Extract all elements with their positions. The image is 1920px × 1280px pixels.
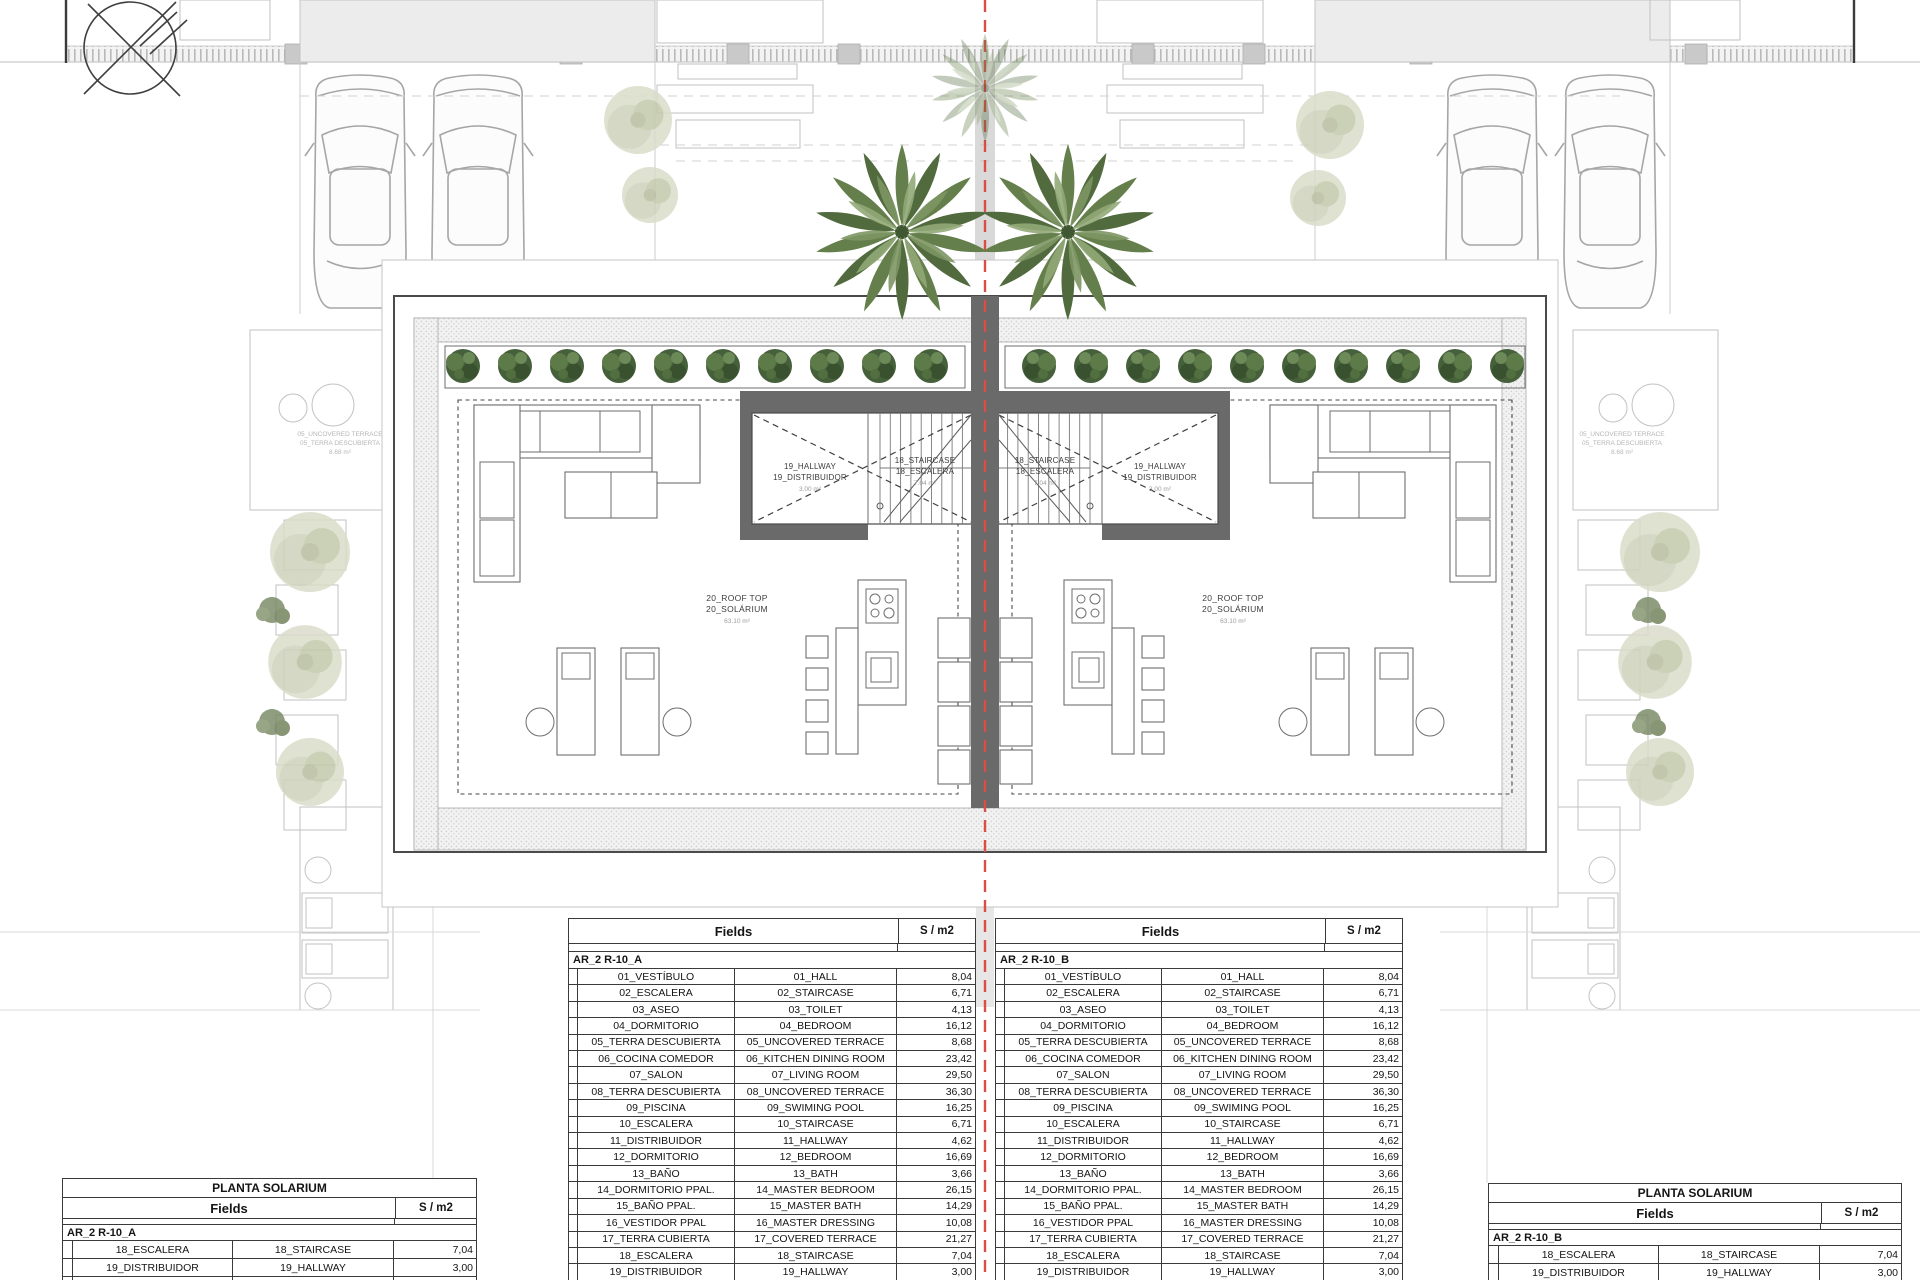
solarium-table-unit-b: PLANTA SOLARIUM Fields S / m2 AR_2 R-10_…: [1488, 1183, 1902, 1280]
table-row: 15_BAÑO PPAL.15_MASTER BATH14,29: [569, 1199, 975, 1215]
cell-es: 17_TERRA CUBIERTA: [1005, 1232, 1162, 1247]
cell-es: 14_DORMITORIO PPAL.: [578, 1182, 735, 1197]
table-row: 16_VESTIDOR PPAL16_MASTER DRESSING10,08: [569, 1215, 975, 1231]
row-spacer: [569, 1018, 578, 1033]
table-row: 19_DISTRIBUIDOR19_HALLWAY3,00: [569, 1264, 975, 1280]
cell-es: 04_DORMITORIO: [1005, 1018, 1162, 1033]
cell-m2: 3,66: [1324, 1166, 1402, 1181]
cell-en: 08_UNCOVERED TERRACE: [735, 1084, 897, 1099]
cell-es: 19_DISTRIBUIDOR: [73, 1259, 233, 1276]
cell-es: 17_TERRA CUBIERTA: [578, 1232, 735, 1247]
cell-m2: 6,71: [897, 985, 975, 1000]
row-spacer: [569, 1232, 578, 1247]
cell-en: 18_STAIRCASE: [233, 1241, 394, 1258]
row-spacer: [996, 1248, 1005, 1263]
row-spacer: [996, 1149, 1005, 1164]
table-row: 13_BAÑO13_BATH3,66: [569, 1166, 975, 1182]
cell-m2: 14,29: [897, 1199, 975, 1214]
table-row: 07_SALON07_LIVING ROOM29,50: [996, 1067, 1402, 1083]
neighbor-terrace-label: 05_UNCOVERED TERRACE: [297, 431, 383, 438]
table-row: 03_ASEO03_TOILET4,13: [996, 1002, 1402, 1018]
cell-en: 03_TOILET: [735, 1002, 897, 1017]
group-row: AR_2 R-10_A: [63, 1225, 476, 1241]
area-header: S / m2: [899, 925, 975, 937]
cell-es: 08_TERRA DESCUBIERTA: [1005, 1084, 1162, 1099]
cell-m2: 29,50: [897, 1067, 975, 1082]
cell-en: 09_SWIMING POOL: [735, 1100, 897, 1115]
cell-en: 14_MASTER BEDROOM: [1162, 1182, 1324, 1197]
staircase-label-a: 18_STAIRCASE: [895, 456, 956, 465]
area-header: S / m2: [1326, 925, 1402, 937]
group-row: AR_2 R-10_A: [569, 952, 975, 969]
cell-m2: 7,04: [394, 1241, 476, 1258]
row-spacer: [996, 1051, 1005, 1066]
cell-en: 12_BEDROOM: [735, 1149, 897, 1164]
cell-en: 18_STAIRCASE: [1162, 1248, 1324, 1263]
cell-m2: 36,30: [1324, 1084, 1402, 1099]
cell-en: 18_STAIRCASE: [1659, 1246, 1820, 1263]
table-row: 02_ESCALERA02_STAIRCASE6,71: [996, 985, 1402, 1001]
svg-text:63.10 m²: 63.10 m²: [1220, 618, 1246, 625]
svg-text:05_TERRA DESCUBIERTA: 05_TERRA DESCUBIERTA: [300, 440, 381, 447]
row-spacer: [996, 1232, 1005, 1247]
row-spacer: [569, 1264, 578, 1279]
cell-es: 15_BAÑO PPAL.: [1005, 1199, 1162, 1214]
table-row: 18_ESCALERA18_STAIRCASE7,04: [569, 1248, 975, 1264]
table-row: 08_TERRA DESCUBIERTA08_UNCOVERED TERRACE…: [569, 1084, 975, 1100]
row-spacer: [569, 1067, 578, 1082]
row-spacer: [996, 1100, 1005, 1115]
table-header: Fields S / m2: [569, 919, 975, 944]
cell-es: 03_ASEO: [1005, 1002, 1162, 1017]
cell-m2: 8,04: [1324, 969, 1402, 984]
svg-text:63.10 m²: 63.10 m²: [724, 618, 750, 625]
svg-text:8.68 m²: 8.68 m²: [329, 449, 352, 456]
cell-en: 19_HALLWAY: [1162, 1264, 1324, 1279]
architectural-sheet: 05_UNCOVERED TERRACE 05_TERRA DESCUBIERT…: [0, 0, 1920, 1280]
row-spacer: [996, 1215, 1005, 1230]
table-row: 11_DISTRIBUIDOR11_HALLWAY4,62: [996, 1133, 1402, 1149]
table-row: 02_ESCALERA02_STAIRCASE6,71: [569, 985, 975, 1001]
staircase-label-b: 18_STAIRCASE: [1015, 456, 1076, 465]
row-spacer: [996, 1264, 1005, 1279]
row-spacer: [569, 1100, 578, 1115]
row-spacer: [996, 1133, 1005, 1148]
cell-es: 14_DORMITORIO PPAL.: [1005, 1182, 1162, 1197]
cell-m2: 29,50: [1324, 1067, 1402, 1082]
cell-en: 01_HALL: [1162, 969, 1324, 984]
row-spacer: [996, 1199, 1005, 1214]
cell-m2: 16,12: [897, 1018, 975, 1033]
cell-m2: 23,42: [897, 1051, 975, 1066]
fields-header: Fields: [996, 919, 1326, 943]
table-header: Fields S / m2: [1489, 1203, 1901, 1224]
row-spacer: [569, 1182, 578, 1197]
svg-text:20_SOLÁRIUM: 20_SOLÁRIUM: [706, 604, 768, 614]
svg-text:3.00 m²: 3.00 m²: [1149, 486, 1172, 493]
cell-es: 19_DISTRIBUIDOR: [578, 1264, 735, 1279]
cell-es: 16_VESTIDOR PPAL: [1005, 1215, 1162, 1230]
table-row: 17_TERRA CUBIERTA17_COVERED TERRACE21,27: [569, 1232, 975, 1248]
table-row: 18_ESCALERA18_STAIRCASE7,04: [996, 1248, 1402, 1264]
cell-en: 04_BEDROOM: [1162, 1018, 1324, 1033]
group-row: AR_2 R-10_B: [996, 952, 1402, 969]
cell-en: 03_TOILET: [1162, 1002, 1324, 1017]
roof-label-b: 20_ROOF TOP: [1202, 593, 1264, 603]
cell-m2: 16,25: [1324, 1100, 1402, 1115]
cell-es: 10_ESCALERA: [1005, 1117, 1162, 1132]
cell-es: 19_DISTRIBUIDOR: [1005, 1264, 1162, 1279]
cell-es: 19_DISTRIBUIDOR: [1499, 1264, 1659, 1280]
table-row: 04_DORMITORIO04_BEDROOM16,12: [569, 1018, 975, 1034]
row-spacer: [1489, 1264, 1499, 1280]
cell-m2: 8,04: [897, 969, 975, 984]
table-row: 15_BAÑO PPAL.15_MASTER BATH14,29: [996, 1199, 1402, 1215]
row-spacer: [1489, 1246, 1499, 1263]
cell-m2: 10,08: [1324, 1215, 1402, 1230]
cell-es: 18_ESCALERA: [73, 1241, 233, 1258]
svg-text:19_DISTRIBUIDOR: 19_DISTRIBUIDOR: [1123, 473, 1197, 482]
cell-en: 07_LIVING ROOM: [735, 1067, 897, 1082]
fields-header: Fields: [569, 919, 899, 943]
cell-es: 12_DORMITORIO: [1005, 1149, 1162, 1164]
cell-m2: 23,42: [1324, 1051, 1402, 1066]
cell-en: 08_UNCOVERED TERRACE: [1162, 1084, 1324, 1099]
cell-en: 06_KITCHEN DINING ROOM: [1162, 1051, 1324, 1066]
table-row: 04_DORMITORIO04_BEDROOM16,12: [996, 1018, 1402, 1034]
row-spacer: [996, 1166, 1005, 1181]
row-spacer: [996, 1084, 1005, 1099]
cell-en: 09_SWIMING POOL: [1162, 1100, 1324, 1115]
cell-en: 19_HALLWAY: [1659, 1264, 1820, 1280]
cell-es: 02_ESCALERA: [1005, 985, 1162, 1000]
row-spacer: [996, 1002, 1005, 1017]
cell-es: 09_PISCINA: [578, 1100, 735, 1115]
cell-es: 10_ESCALERA: [578, 1117, 735, 1132]
cell-m2: 21,27: [897, 1232, 975, 1247]
cell-en: 18_STAIRCASE: [735, 1248, 897, 1263]
table-title: PLANTA SOLARIUM: [63, 1179, 476, 1198]
row-spacer: [569, 1248, 578, 1263]
row-spacer: [569, 1002, 578, 1017]
cell-en: 04_BEDROOM: [735, 1018, 897, 1033]
cell-m2: 7,04: [1324, 1248, 1402, 1263]
row-spacer: [996, 1182, 1005, 1197]
table-row: 06_COCINA COMEDOR06_KITCHEN DINING ROOM2…: [996, 1051, 1402, 1067]
row-spacer: [569, 1215, 578, 1230]
svg-text:18_ESCALERA: 18_ESCALERA: [896, 467, 955, 476]
svg-text:7.04 m²: 7.04 m²: [914, 480, 937, 487]
cell-es: 04_DORMITORIO: [578, 1018, 735, 1033]
group-row: AR_2 R-10_B: [1489, 1230, 1901, 1246]
cell-en: 15_MASTER BATH: [1162, 1199, 1324, 1214]
table-row: 17_TERRA CUBIERTA17_COVERED TERRACE21,27: [996, 1232, 1402, 1248]
table-row: 18_ESCALERA18_STAIRCASE7,04: [63, 1241, 476, 1259]
cell-en: 19_HALLWAY: [233, 1259, 394, 1276]
cell-en: 11_HALLWAY: [1162, 1133, 1324, 1148]
cell-es: 11_DISTRIBUIDOR: [578, 1133, 735, 1148]
cell-es: 08_TERRA DESCUBIERTA: [578, 1084, 735, 1099]
table-row: 19_DISTRIBUIDOR19_HALLWAY3,00: [996, 1264, 1402, 1280]
row-spacer: [996, 1117, 1005, 1132]
fields-header: Fields: [63, 1198, 396, 1218]
area-table-unit-b: Fields S / m2 AR_2 R-10_B 01_VESTÍBULO01…: [995, 918, 1403, 1280]
cell-es: 01_VESTÍBULO: [1005, 969, 1162, 984]
cell-m2: 3,00: [897, 1264, 975, 1279]
cell-es: 07_SALON: [1005, 1067, 1162, 1082]
cell-en: 17_COVERED TERRACE: [1162, 1232, 1324, 1247]
row-spacer: [996, 1035, 1005, 1050]
area-header: S / m2: [396, 1202, 476, 1214]
table-row: 07_SALON07_LIVING ROOM29,50: [569, 1067, 975, 1083]
roof-label-a: 20_ROOF TOP: [706, 593, 768, 603]
cell-es: 09_PISCINA: [1005, 1100, 1162, 1115]
cell-es: 18_ESCALERA: [1499, 1246, 1659, 1263]
cell-m2: 4,13: [1324, 1002, 1402, 1017]
table-row: 09_PISCINA09_SWIMING POOL16,25: [996, 1100, 1402, 1116]
hallway-label-a: 19_HALLWAY: [784, 462, 837, 471]
row-spacer: [63, 1259, 73, 1276]
cell-en: 05_UNCOVERED TERRACE: [735, 1035, 897, 1050]
cell-es: 05_TERRA DESCUBIERTA: [578, 1035, 735, 1050]
cell-en: 13_BATH: [1162, 1166, 1324, 1181]
cell-en: 12_BEDROOM: [1162, 1149, 1324, 1164]
cell-es: 07_SALON: [578, 1067, 735, 1082]
cell-en: 07_LIVING ROOM: [1162, 1067, 1324, 1082]
row-spacer: [569, 1051, 578, 1066]
cell-m2: 36,30: [897, 1084, 975, 1099]
cell-en: 05_UNCOVERED TERRACE: [1162, 1035, 1324, 1050]
cell-es: 06_COCINA COMEDOR: [1005, 1051, 1162, 1066]
cell-en: 01_HALL: [735, 969, 897, 984]
cell-es: 16_VESTIDOR PPAL: [578, 1215, 735, 1230]
row-spacer: [569, 1199, 578, 1214]
table-row: 03_ASEO03_TOILET4,13: [569, 1002, 975, 1018]
cell-es: 13_BAÑO: [578, 1166, 735, 1181]
row-spacer: [569, 1149, 578, 1164]
cell-m2: 3,00: [1820, 1264, 1901, 1280]
table-row: 12_DORMITORIO12_BEDROOM16,69: [569, 1149, 975, 1165]
cell-m2: 16,69: [1324, 1149, 1402, 1164]
row-spacer: [569, 1166, 578, 1181]
cell-m2: 6,71: [1324, 1117, 1402, 1132]
cell-en: 06_KITCHEN DINING ROOM: [735, 1051, 897, 1066]
table-row: 10_ESCALERA10_STAIRCASE6,71: [569, 1117, 975, 1133]
svg-text:05_TERRA DESCUBIERTA: 05_TERRA DESCUBIERTA: [1582, 440, 1663, 447]
svg-text:3.00 m²: 3.00 m²: [799, 486, 822, 493]
table-header: Fields S / m2: [63, 1198, 476, 1219]
solarium-table-unit-a: PLANTA SOLARIUM Fields S / m2 AR_2 R-10_…: [62, 1178, 477, 1280]
table-row: 14_DORMITORIO PPAL.14_MASTER BEDROOM26,1…: [569, 1182, 975, 1198]
cell-en: 10_STAIRCASE: [1162, 1117, 1324, 1132]
row-spacer: [996, 1018, 1005, 1033]
cell-es: 01_VESTÍBULO: [578, 969, 735, 984]
cell-en: 14_MASTER BEDROOM: [735, 1182, 897, 1197]
table-row: 16_VESTIDOR PPAL16_MASTER DRESSING10,08: [996, 1215, 1402, 1231]
cell-m2: 4,62: [897, 1133, 975, 1148]
svg-text:19_DISTRIBUIDOR: 19_DISTRIBUIDOR: [773, 473, 847, 482]
table-row: 01_VESTÍBULO01_HALL8,04: [996, 969, 1402, 985]
table-row: 05_TERRA DESCUBIERTA05_UNCOVERED TERRACE…: [996, 1035, 1402, 1051]
fields-header: Fields: [1489, 1203, 1822, 1223]
cell-m2: 4,62: [1324, 1133, 1402, 1148]
cell-en: 19_HALLWAY: [735, 1264, 897, 1279]
cell-es: 05_TERRA DESCUBIERTA: [1005, 1035, 1162, 1050]
table-row: 09_PISCINA09_SWIMING POOL16,25: [569, 1100, 975, 1116]
cell-en: 17_COVERED TERRACE: [735, 1232, 897, 1247]
row-spacer: [996, 969, 1005, 984]
cell-es: 15_BAÑO PPAL.: [578, 1199, 735, 1214]
svg-text:20_SOLÁRIUM: 20_SOLÁRIUM: [1202, 604, 1264, 614]
cell-en: 15_MASTER BATH: [735, 1199, 897, 1214]
cell-es: 02_ESCALERA: [578, 985, 735, 1000]
cell-m2: 6,71: [1324, 985, 1402, 1000]
cell-m2: 21,27: [1324, 1232, 1402, 1247]
cell-es: 06_COCINA COMEDOR: [578, 1051, 735, 1066]
cell-m2: 14,29: [1324, 1199, 1402, 1214]
svg-text:8.68 m²: 8.68 m²: [1611, 449, 1634, 456]
cell-m2: 3,66: [897, 1166, 975, 1181]
row-spacer: [569, 1117, 578, 1132]
cell-m2: 3,00: [1324, 1264, 1402, 1279]
cell-m2: 8,68: [1324, 1035, 1402, 1050]
cell-m2: 3,00: [394, 1259, 476, 1276]
cell-es: 18_ESCALERA: [1005, 1248, 1162, 1263]
cell-m2: 16,69: [897, 1149, 975, 1164]
cell-m2: 10,08: [897, 1215, 975, 1230]
cell-m2: 8,68: [897, 1035, 975, 1050]
table-row: 06_COCINA COMEDOR06_KITCHEN DINING ROOM2…: [569, 1051, 975, 1067]
table-row: 01_VESTÍBULO01_HALL8,04: [569, 969, 975, 985]
cell-es: 03_ASEO: [578, 1002, 735, 1017]
cell-es: 18_ESCALERA: [578, 1248, 735, 1263]
cell-m2: 4,13: [897, 1002, 975, 1017]
row-spacer: [569, 1084, 578, 1099]
cell-es: 12_DORMITORIO: [578, 1149, 735, 1164]
cell-m2: 7,04: [1820, 1246, 1901, 1263]
table-row: 19_DISTRIBUIDOR19_HALLWAY3,00: [63, 1259, 476, 1277]
cell-en: 02_STAIRCASE: [1162, 985, 1324, 1000]
table-row: 19_DISTRIBUIDOR19_HALLWAY3,00: [1489, 1264, 1901, 1280]
row-spacer: [569, 1133, 578, 1148]
cell-m2: 6,71: [897, 1117, 975, 1132]
cell-m2: 26,15: [897, 1182, 975, 1197]
cell-m2: 26,15: [1324, 1182, 1402, 1197]
table-row: 18_ESCALERA18_STAIRCASE7,04: [1489, 1246, 1901, 1264]
area-header: S / m2: [1822, 1207, 1901, 1219]
svg-text:7.04 m²: 7.04 m²: [1034, 480, 1057, 487]
cell-es: 13_BAÑO: [1005, 1166, 1162, 1181]
cell-en: 11_HALLWAY: [735, 1133, 897, 1148]
solarium-plan: [382, 260, 1558, 907]
area-table-unit-a: Fields S / m2 AR_2 R-10_A 01_VESTÍBULO01…: [568, 918, 976, 1280]
cell-m2: 7,04: [897, 1248, 975, 1263]
cell-es: 11_DISTRIBUIDOR: [1005, 1133, 1162, 1148]
row-spacer: [63, 1241, 73, 1258]
cell-en: 10_STAIRCASE: [735, 1117, 897, 1132]
cell-m2: 16,25: [897, 1100, 975, 1115]
table-row: 10_ESCALERA10_STAIRCASE6,71: [996, 1117, 1402, 1133]
row-spacer: [569, 1035, 578, 1050]
row-spacer: [996, 1067, 1005, 1082]
row-spacer: [569, 969, 578, 984]
table-row: 05_TERRA DESCUBIERTA05_UNCOVERED TERRACE…: [569, 1035, 975, 1051]
hallway-label-b: 19_HALLWAY: [1134, 462, 1187, 471]
svg-text:18_ESCALERA: 18_ESCALERA: [1016, 467, 1075, 476]
cell-en: 02_STAIRCASE: [735, 985, 897, 1000]
cell-en: 16_MASTER DRESSING: [735, 1215, 897, 1230]
table-title: PLANTA SOLARIUM: [1489, 1184, 1901, 1203]
cell-en: 16_MASTER DRESSING: [1162, 1215, 1324, 1230]
table-row: 13_BAÑO13_BATH3,66: [996, 1166, 1402, 1182]
row-spacer: [569, 985, 578, 1000]
neighbor-terrace-label: 05_UNCOVERED TERRACE: [1579, 431, 1665, 438]
table-row: 11_DISTRIBUIDOR11_HALLWAY4,62: [569, 1133, 975, 1149]
table-row: 14_DORMITORIO PPAL.14_MASTER BEDROOM26,1…: [996, 1182, 1402, 1198]
table-row: 08_TERRA DESCUBIERTA08_UNCOVERED TERRACE…: [996, 1084, 1402, 1100]
cell-en: 13_BATH: [735, 1166, 897, 1181]
table-row: 12_DORMITORIO12_BEDROOM16,69: [996, 1149, 1402, 1165]
row-spacer: [996, 985, 1005, 1000]
table-header: Fields S / m2: [996, 919, 1402, 944]
cell-m2: 16,12: [1324, 1018, 1402, 1033]
